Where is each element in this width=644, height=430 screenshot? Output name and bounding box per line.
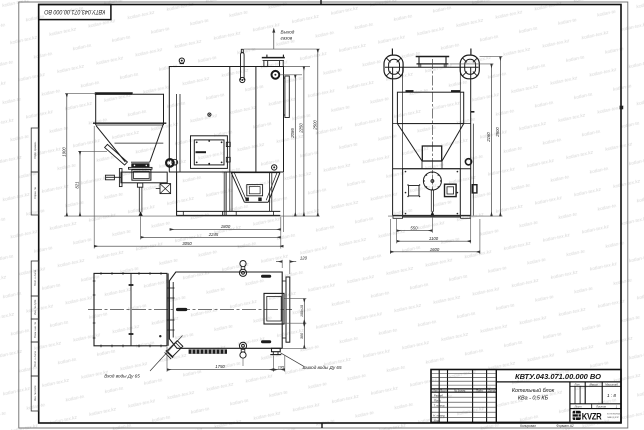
svg-text:100±10: 100±10 xyxy=(300,305,304,317)
svg-text:Изм: Изм xyxy=(433,389,438,393)
svg-text:Инв. № дубл.: Инв. № дубл. xyxy=(33,299,37,315)
svg-text:2245: 2245 xyxy=(208,232,219,237)
svg-text:Перв. примен.: Перв. примен. xyxy=(33,141,37,159)
svg-text:1900: 1900 xyxy=(61,147,66,157)
svg-text:КВТУ.043.071.00.000 ВО: КВТУ.043.071.00.000 ВО xyxy=(44,8,105,15)
svg-text:Масса: Масса xyxy=(590,382,598,386)
svg-text:ЗАВОД КЗР: ЗАВОД КЗР xyxy=(607,416,619,419)
svg-text:№ докум.: № докум. xyxy=(454,389,466,393)
svg-text:300: 300 xyxy=(300,332,304,339)
svg-text:Копировал: Копировал xyxy=(520,424,536,428)
svg-text:Лит.: Лит. xyxy=(573,382,581,386)
svg-text:821: 821 xyxy=(75,181,80,189)
svg-text:2160: 2160 xyxy=(486,132,491,143)
svg-text:1100: 1100 xyxy=(429,236,439,241)
svg-text:1750: 1750 xyxy=(215,364,225,369)
svg-text:КВТУ.043.071.00.000 ВО: КВТУ.043.071.00.000 ВО xyxy=(515,372,601,381)
svg-text:Подп. и дата: Подп. и дата xyxy=(33,350,37,367)
svg-text:Инв. № подл.: Инв. № подл. xyxy=(33,385,37,401)
svg-text:Утв.: Утв. xyxy=(434,418,440,422)
svg-text:Справ. №: Справ. № xyxy=(33,187,37,199)
svg-text:1600: 1600 xyxy=(430,247,440,252)
svg-text:Выход: Выход xyxy=(281,29,295,34)
svg-text:195: 195 xyxy=(278,365,285,369)
svg-text:2250: 2250 xyxy=(299,123,304,134)
svg-text:КВа - 0,5 КБ: КВа - 0,5 КБ xyxy=(518,396,549,402)
svg-text:газов: газов xyxy=(281,36,293,41)
svg-text:Формат А2: Формат А2 xyxy=(556,424,574,428)
svg-text:Н. контр.: Н. контр. xyxy=(433,413,445,417)
svg-text:Выход воды Ду 65: Выход воды Ду 65 xyxy=(302,365,342,370)
svg-text:Взам. инв. №: Взам. инв. № xyxy=(33,322,37,338)
svg-text:2500: 2500 xyxy=(495,127,500,138)
svg-text:Дата: Дата xyxy=(487,389,496,393)
svg-text:Разраб.: Разраб. xyxy=(434,393,444,397)
svg-text:KVZR: KVZR xyxy=(582,411,602,421)
svg-text:Масштаб: Масштаб xyxy=(605,382,618,386)
svg-text:Подп.: Подп. xyxy=(476,389,483,393)
svg-text:550: 550 xyxy=(410,226,418,231)
svg-text:120: 120 xyxy=(300,256,308,261)
svg-text:Лист: Лист xyxy=(439,389,448,393)
svg-text:1 : 8: 1 : 8 xyxy=(607,393,616,398)
svg-text:3050: 3050 xyxy=(182,241,192,246)
svg-text:Подп. и дата: Подп. и дата xyxy=(33,269,37,286)
svg-text:КОТЕЛЬНЫЙ: КОТЕЛЬНЫЙ xyxy=(607,413,621,416)
svg-text:1800: 1800 xyxy=(221,224,231,229)
svg-text:Т. контр.: Т. контр. xyxy=(434,403,446,407)
svg-text:Листов: Листов xyxy=(595,405,606,409)
svg-text:Пров.: Пров. xyxy=(434,398,441,402)
svg-text:2500: 2500 xyxy=(312,120,317,131)
svg-text:Лист: Лист xyxy=(574,405,583,409)
svg-text:2086: 2086 xyxy=(290,128,295,139)
svg-text:Котельный блок: Котельный блок xyxy=(512,387,555,394)
svg-text:Вход воды Ду 65: Вход воды Ду 65 xyxy=(104,374,140,379)
